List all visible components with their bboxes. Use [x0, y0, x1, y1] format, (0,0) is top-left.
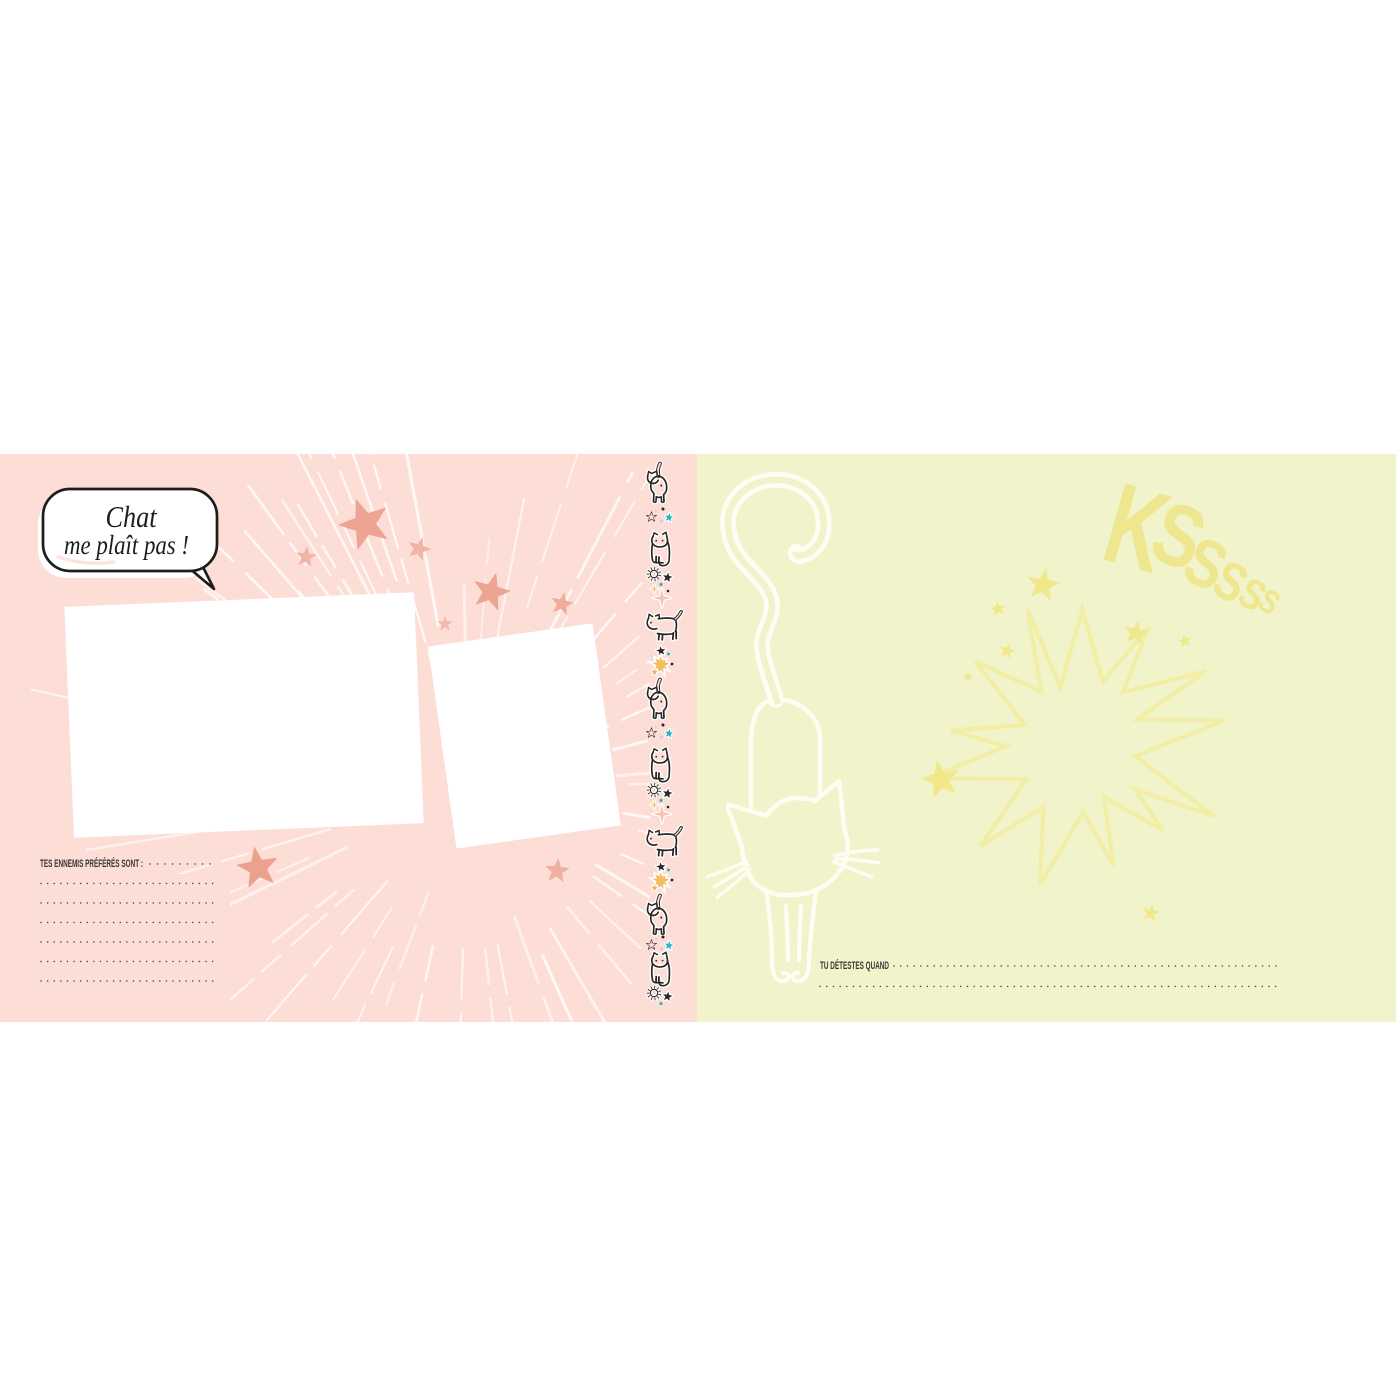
svg-text:TES ENNEMIS PRÉFÉRÉS SONT :: TES ENNEMIS PRÉFÉRÉS SONT :	[40, 857, 143, 870]
svg-text:TU DÉTESTES QUAND: TU DÉTESTES QUAND	[820, 959, 889, 972]
svg-text:Chat: Chat	[106, 499, 158, 534]
svg-text:me plaît pas !: me plaît pas !	[64, 530, 189, 560]
